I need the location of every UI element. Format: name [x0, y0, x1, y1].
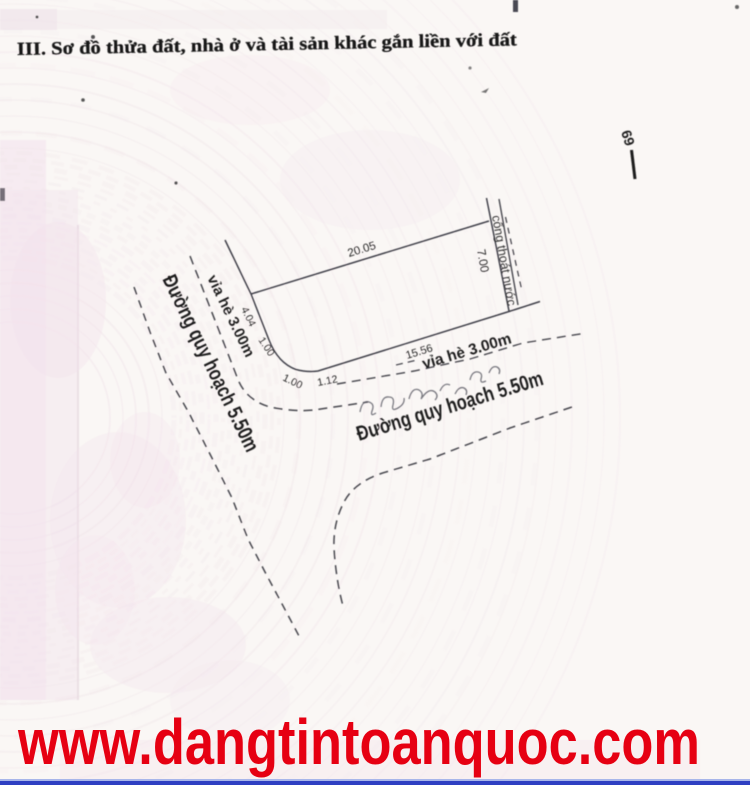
svg-text:www.dangtintoanquoc.com: www.dangtintoanquoc.com	[17, 706, 700, 778]
